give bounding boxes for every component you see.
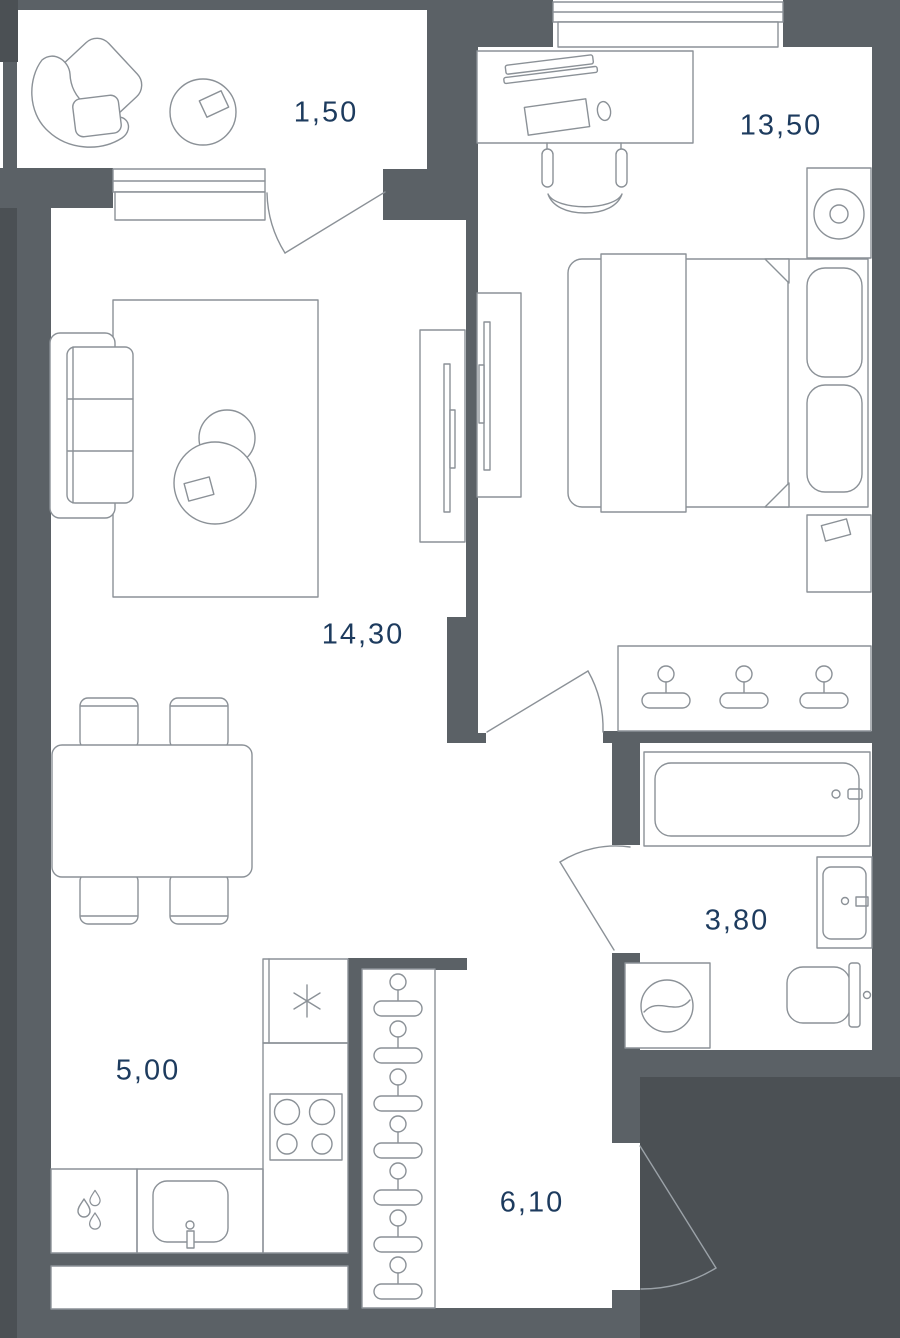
door-bathroom (560, 846, 630, 950)
water-drop-icon (90, 1213, 101, 1229)
water-drop-icon (78, 1199, 90, 1217)
washing-machine (625, 963, 710, 1048)
washbasin (817, 857, 872, 948)
kitchen-sink (153, 1181, 228, 1248)
nightstand-lamp (807, 168, 871, 258)
nightstand-book (807, 515, 871, 592)
plan-drawing (0, 0, 900, 1338)
tv-unit-bedroom (477, 293, 521, 497)
window-kitchen-bottom (51, 1266, 348, 1309)
bedroom-desk (477, 51, 693, 143)
window-balcony-living (113, 169, 265, 220)
balcony-area-label: 1,50 (294, 97, 358, 130)
pillow (807, 268, 862, 377)
door-entry (640, 1146, 716, 1289)
fridge (263, 959, 348, 1043)
living-sofa (50, 333, 133, 518)
stove (270, 1094, 342, 1160)
tv-unit-living (420, 330, 465, 542)
bed (568, 254, 868, 512)
pillow (807, 385, 862, 492)
toilet (787, 963, 871, 1027)
floor-plan: 1,50 13,50 14,30 3,80 5,00 6,10 (0, 0, 900, 1338)
bathroom-area-label: 3,80 (705, 905, 769, 938)
hallway-area-label: 6,10 (500, 1187, 564, 1220)
kitchen-area-label: 5,00 (116, 1055, 180, 1088)
desk-chair (542, 143, 627, 213)
living-area-label: 14,30 (322, 619, 405, 652)
wardrobe-hall (362, 969, 435, 1308)
balcony-side-table (170, 79, 236, 145)
water-drop-icon (90, 1190, 100, 1205)
living-coffee-tables (174, 410, 256, 524)
bedroom-area-label: 13,50 (740, 110, 823, 143)
door-bedroom (487, 671, 603, 732)
dishwasher (78, 1190, 100, 1229)
wardrobe-bedroom (618, 646, 871, 731)
door-balcony (267, 192, 385, 253)
dining-table (52, 745, 252, 877)
bathtub (644, 752, 870, 846)
window-bedroom-top (553, 2, 783, 47)
balcony-armchair (32, 32, 148, 147)
